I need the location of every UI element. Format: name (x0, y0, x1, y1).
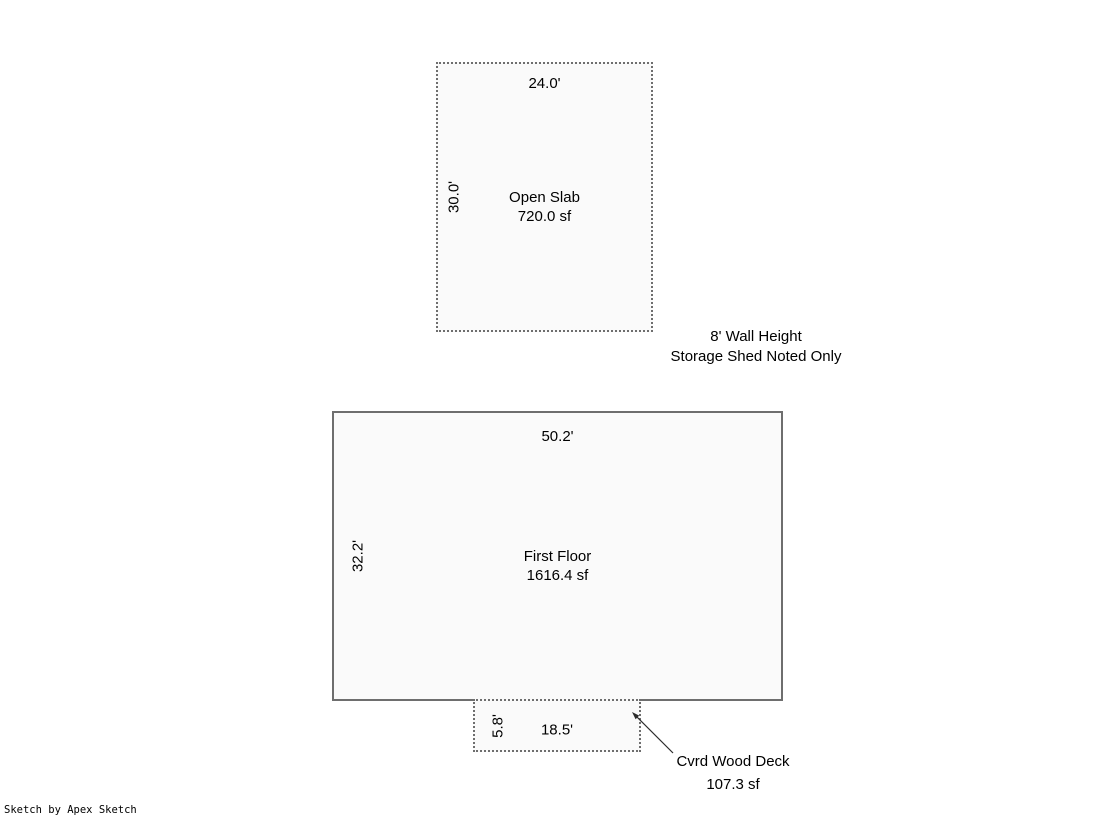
first-floor-width-dimension: 50.2' (334, 428, 781, 445)
open-slab-shape: 24.0' 30.0' Open Slab 720.0 sf (436, 62, 653, 332)
first-floor-area-value: 1616.4 sf (524, 566, 592, 585)
first-floor-height-dimension: 32.2' (350, 540, 367, 572)
deck-callout-arrow-icon (625, 705, 680, 757)
open-slab-name: Open Slab (509, 188, 580, 207)
shed-note-annotation: 8' Wall Height Storage Shed Noted Only (671, 327, 842, 367)
open-slab-label: Open Slab 720.0 sf (509, 188, 580, 226)
deck-width-dimension: 18.5' (541, 721, 573, 738)
open-slab-area-value: 720.0 sf (509, 207, 580, 226)
open-slab-height-dimension: 30.0' (446, 181, 463, 213)
open-slab-width-dimension: 24.0' (438, 75, 651, 92)
floorplan-sketch-canvas: 24.0' 30.0' Open Slab 720.0 sf 8' Wall H… (0, 0, 1119, 821)
first-floor-shape: 50.2' 32.2' First Floor 1616.4 sf (332, 411, 783, 701)
covered-wood-deck-shape: 5.8' 18.5' (473, 699, 641, 752)
deck-callout-name: Cvrd Wood Deck (676, 750, 789, 773)
first-floor-label: First Floor 1616.4 sf (524, 547, 592, 585)
deck-callout-area-value: 107.3 sf (676, 773, 789, 796)
sketch-credit-text: Sketch by Apex Sketch (4, 804, 137, 816)
shed-note-line1: 8' Wall Height (671, 327, 842, 347)
deck-height-dimension: 5.8' (490, 714, 507, 738)
shed-note-line2: Storage Shed Noted Only (671, 347, 842, 367)
deck-callout-annotation: Cvrd Wood Deck 107.3 sf (676, 750, 789, 796)
first-floor-name: First Floor (524, 547, 592, 566)
